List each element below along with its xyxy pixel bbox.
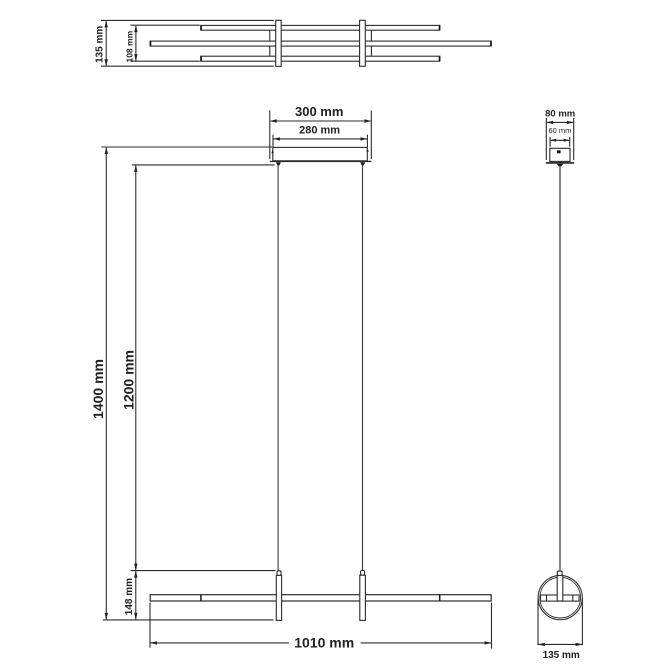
svg-text:1400 mm: 1400 mm	[90, 359, 106, 419]
svg-text:135 mm: 135 mm	[543, 650, 580, 661]
svg-text:60 mm: 60 mm	[548, 126, 571, 135]
svg-text:80 mm: 80 mm	[545, 108, 575, 119]
svg-text:148 mm: 148 mm	[124, 578, 135, 615]
svg-text:1010 mm: 1010 mm	[294, 635, 354, 651]
svg-text:300 mm: 300 mm	[295, 104, 343, 119]
svg-text:280 mm: 280 mm	[299, 125, 340, 137]
svg-text:108 mm: 108 mm	[124, 30, 134, 62]
svg-text:135 mm: 135 mm	[94, 26, 105, 63]
svg-text:1200 mm: 1200 mm	[121, 350, 137, 410]
